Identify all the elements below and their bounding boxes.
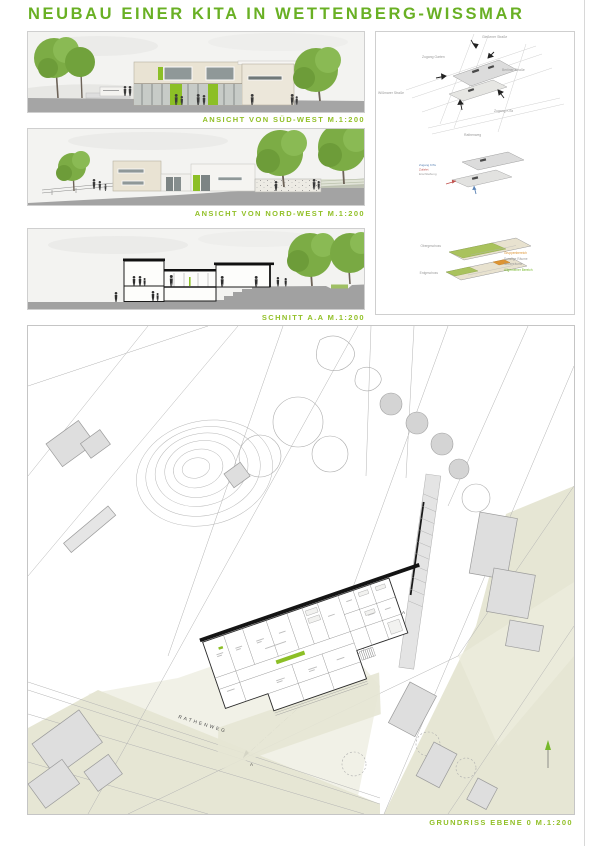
panel-site-plan: A A — [27, 325, 575, 815]
lime-element — [189, 277, 191, 286]
street-label: Berliner Straße — [502, 68, 525, 72]
site-plan-drawing: A A — [28, 326, 574, 814]
section-marker-a: A — [402, 610, 405, 615]
section-drawing — [28, 229, 364, 309]
legend-item: Gruppenbereich — [504, 251, 527, 255]
entry-label: Zugang Garten — [422, 55, 445, 59]
diagram-site-access: Gießener Straße Berliner Straße Wißmarer… — [378, 34, 564, 137]
legend-red: Zufahrt — [419, 168, 429, 172]
lime-door — [193, 175, 200, 191]
section-label: SCHNITT A.A M.1:200 — [165, 313, 365, 322]
window — [164, 67, 192, 80]
panel-elevation-sw — [27, 31, 365, 113]
page-title: NEUBAU EINER KITA IN WETTENBERG-WISSMAR — [28, 5, 524, 24]
floor-label: Erdgeschoss — [420, 271, 439, 275]
board-edge — [584, 0, 585, 846]
gabion-wall — [255, 179, 321, 192]
site-plan-label: GRUNDRISS EBENE 0 M.1:200 — [373, 818, 573, 827]
legend-blue: Zugang KiTa — [419, 163, 436, 167]
legend-gray: Erschließung — [419, 172, 437, 176]
lime-door — [208, 84, 218, 105]
panel-diagrams: Gießener Straße Berliner Straße Wißmarer… — [375, 31, 575, 315]
legend-item: Nebenräume — [504, 262, 523, 266]
legend-item: Allgemeiner Bereich — [504, 268, 533, 272]
window — [206, 67, 234, 80]
diagram-circulation: Zugang KiTa Zufahrt Erschließung — [419, 152, 524, 194]
elevation-sw-drawing — [28, 32, 364, 112]
legend-item: Sonstige Räume — [504, 257, 528, 261]
panel-section — [27, 228, 365, 310]
concept-diagrams: Gießener Straße Berliner Straße Wißmarer… — [376, 32, 574, 314]
elevation-nw-label: ANSICHT VON NORD-WEST M.1:200 — [165, 209, 365, 218]
slot-window — [248, 76, 282, 80]
planter — [331, 285, 348, 289]
diagram-program: Obergeschoss Erdgeschoss Gruppenbereich … — [420, 238, 533, 280]
street-label: Wißmarer Straße — [378, 91, 404, 95]
lime-panel — [158, 67, 163, 80]
presentation-board: NEUBAU EINER KITA IN WETTENBERG-WISSMAR — [0, 0, 600, 846]
street-label: Rathenweg — [464, 133, 481, 137]
elevation-sw-label: ANSICHT VON SÜD-WEST M.1:200 — [165, 115, 365, 124]
elevation-nw-drawing — [28, 129, 364, 205]
section-marker-a: A — [250, 762, 253, 767]
entry-label: Zugang KiTa — [494, 109, 513, 113]
floor-label: Obergeschoss — [420, 244, 441, 248]
panel-elevation-nw — [27, 128, 365, 206]
street-label: Gießener Straße — [482, 35, 507, 39]
building-elevation-sw — [134, 61, 300, 105]
